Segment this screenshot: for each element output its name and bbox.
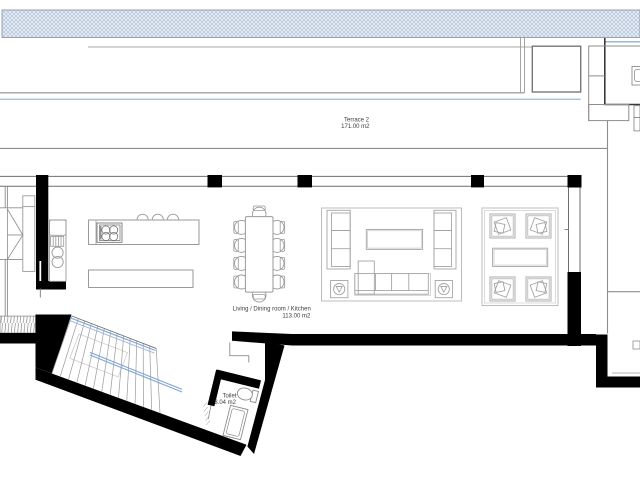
svg-text:113.00 m2: 113.00 m2 xyxy=(282,314,311,320)
svg-text:Toilet: Toilet xyxy=(222,393,236,399)
svg-text:Terrace 2: Terrace 2 xyxy=(344,117,370,123)
svg-text:Living / Dining room / Kitchen: Living / Dining room / Kitchen xyxy=(233,307,311,313)
svg-text:171.00 m2: 171.00 m2 xyxy=(341,124,370,130)
svg-text:3.04 m2: 3.04 m2 xyxy=(214,400,236,406)
